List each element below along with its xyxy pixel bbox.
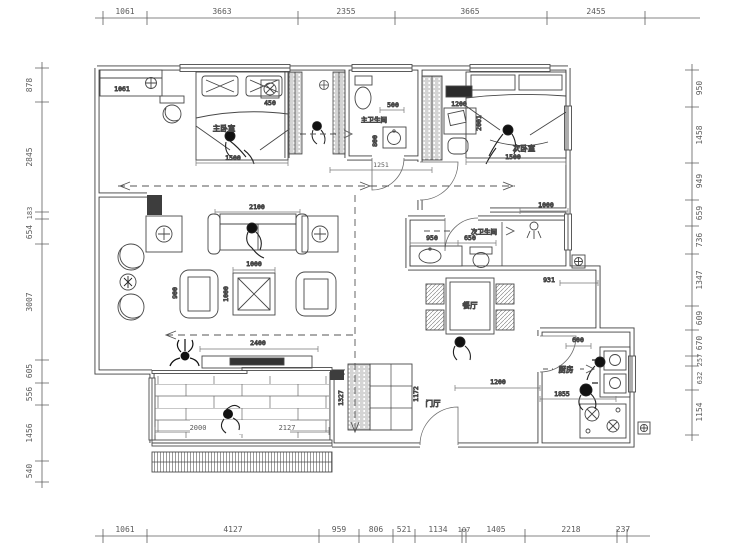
dim-top-0: 1061 [115, 7, 134, 16]
dim-bath2-sink: 950 [426, 234, 438, 242]
person-figure [579, 357, 605, 410]
dim-bed2-wall: 1000 [538, 201, 554, 209]
dim-top-1: 3663 [212, 7, 231, 16]
dim-bottom-0: 1061 [115, 525, 134, 534]
person-figure [247, 223, 264, 258]
dim-bed2-len: 2001 [475, 115, 483, 131]
room-label-second-bedroom: 次卧室 [513, 143, 536, 153]
dim-right-10: 1154 [695, 402, 704, 421]
floor-plan-canvas: 1061 3663 2355 3665 2455 1061 4127 959 8… [0, 0, 740, 550]
side-table-icon [146, 216, 182, 252]
room-label-master-bath: 主卫生间 [361, 115, 387, 124]
dim-entry-cab2: 1172 [412, 386, 420, 402]
door-icon [420, 162, 458, 200]
dim-bath2-out: 931 [543, 276, 555, 284]
stove-icon [580, 404, 626, 438]
room-label-second-bath: 次卫生间 [471, 227, 497, 236]
dim-ctable-h: 1000 [222, 286, 230, 302]
room-label-dining: 餐厅 [463, 301, 478, 310]
dim-balcony-1: 2000 [190, 424, 207, 432]
ceiling-light-icon [638, 422, 650, 434]
dining-room: 餐厅 [426, 278, 514, 360]
dim-right-8: 257 [696, 354, 704, 367]
entry-cabinet-icon [370, 364, 412, 430]
dim-right-6: 609 [695, 311, 704, 326]
dim-left-4: 3007 [25, 292, 34, 311]
dim-left-3: 654 [25, 225, 34, 240]
dim-tv: 2400 [250, 339, 266, 347]
dim-bottom-9: 237 [616, 525, 631, 534]
dim-bottom-8: 2218 [561, 525, 580, 534]
dimension-col-left: 878 2845 183 654 3007 605 556 1456 540 [25, 62, 49, 488]
door-icon [420, 407, 458, 445]
dim-bottom-2: 959 [332, 525, 347, 534]
master-bedroom: 1061 450 1500 主卧室 [100, 70, 288, 166]
dim-bed1: 1500 [225, 154, 241, 162]
balcony: 2000 2127 [152, 376, 332, 472]
dim-balcony-2: 2127 [279, 424, 296, 432]
coffee-table-icon [233, 273, 275, 315]
walk-in-closet [289, 72, 345, 154]
stool-icon [160, 96, 184, 123]
person-figure [453, 337, 470, 360]
dim-left-2: 183 [26, 207, 34, 220]
wardrobe-icon [100, 70, 162, 96]
desk-icon [444, 108, 476, 154]
dim-left-5: 605 [25, 364, 34, 379]
dim-right-3: 659 [695, 206, 704, 221]
dim-sofa: 2100 [249, 203, 265, 211]
room-label-master-bedroom: 主卧室 [213, 123, 236, 133]
wall-pillar [147, 195, 162, 215]
dim-bath1-d: 800 [371, 135, 379, 147]
window-icon [470, 65, 550, 72]
dim-bottom-1: 4127 [223, 525, 242, 534]
living-room: 2100 1000 1000 900 2400 [118, 203, 338, 368]
dim-left-6: 556 [25, 387, 34, 402]
dim-kitchen-w: 1855 [554, 390, 570, 398]
window-icon [152, 440, 332, 446]
armchair-icon [180, 270, 218, 318]
dim-left-0: 878 [25, 78, 34, 93]
hallway: 1251 [330, 161, 432, 173]
dim-left-8: 540 [25, 464, 34, 479]
kitchen-sink-icon [592, 347, 630, 397]
window-icon [180, 65, 290, 72]
bath-counter-icon [410, 246, 462, 266]
toilet-icon [355, 76, 372, 109]
dim-bottom-5: 1134 [428, 525, 447, 534]
wall-pillar [330, 370, 344, 380]
appliance-icon [446, 86, 472, 97]
dim-top-2: 2355 [336, 7, 355, 16]
floor-plan-page: 1061 3663 2355 3665 2455 1061 4127 959 8… [0, 0, 740, 550]
dim-right-7: 670 [695, 336, 704, 351]
dim-chair: 900 [171, 287, 179, 299]
armchair-icon [296, 272, 336, 316]
exhaust-fan-icon [261, 80, 279, 98]
chair-icon [496, 284, 514, 304]
dim-right-2: 949 [695, 174, 704, 189]
chair-icon [426, 310, 444, 330]
window-icon [149, 378, 155, 440]
window-icon [352, 65, 412, 72]
shower-icon [527, 222, 541, 239]
tv-cabinet-icon [202, 356, 312, 368]
dim-bath1-w: 500 [387, 101, 399, 109]
second-bedroom: 1200 2001 1500 次卧室 1000 [422, 72, 568, 214]
chair-icon [496, 310, 514, 330]
dim-entry-cab1: 1327 [337, 390, 345, 406]
person-figure [312, 122, 325, 145]
chair-icon [426, 284, 444, 304]
dimension-row-top: 1061 3663 2355 3665 2455 [95, 7, 700, 25]
dim-left-1: 2845 [25, 147, 34, 166]
window-icon [565, 214, 572, 250]
dim-right-4: 736 [695, 233, 704, 248]
dim-right-0: 950 [695, 81, 704, 96]
dim-kitchen-top: 600 [572, 336, 584, 344]
dim-right-5: 1347 [695, 270, 704, 289]
dim-bottom-7: 1405 [486, 525, 505, 534]
window-icon [629, 356, 636, 392]
dim-ctable-w: 1000 [246, 260, 262, 268]
dimension-row-bottom: 1061 4127 959 806 521 1134 107 1405 2218… [95, 525, 650, 543]
room-label-kitchen: 厨房 [559, 364, 574, 374]
dim-top-3: 3665 [460, 7, 479, 16]
foyer: 1327 1172 门厅 1200 [337, 364, 540, 430]
dimension-col-right: 950 1458 949 659 736 1347 609 670 257 63… [685, 64, 704, 441]
room-label-foyer: 门厅 [426, 399, 441, 408]
dim-bottom-4: 521 [397, 525, 412, 534]
shoe-cabinet-icon [348, 364, 370, 430]
wicker-chair-icon [118, 244, 144, 320]
dim-left-7: 1456 [25, 423, 34, 442]
toilet-icon [470, 247, 492, 268]
dim-fan: 450 [264, 99, 276, 107]
plant-icon [170, 339, 199, 366]
dim-bed2-w: 1500 [505, 153, 521, 161]
dim-right-1: 1458 [695, 125, 704, 144]
dim-bottom-6: 107 [458, 526, 471, 534]
dim-entry-w: 1200 [490, 378, 506, 386]
dim-right-9: 632 [696, 372, 704, 385]
dim-wardrobe: 1061 [114, 85, 130, 93]
dim-top-4: 2455 [586, 7, 605, 16]
dim-hall: 1251 [373, 161, 389, 169]
side-table-icon [302, 216, 338, 252]
dim-desk: 1200 [451, 100, 467, 108]
master-bath: 500 800 主卫生间 [300, 76, 406, 148]
sink-icon [383, 127, 406, 148]
dim-bottom-3: 806 [369, 525, 384, 534]
